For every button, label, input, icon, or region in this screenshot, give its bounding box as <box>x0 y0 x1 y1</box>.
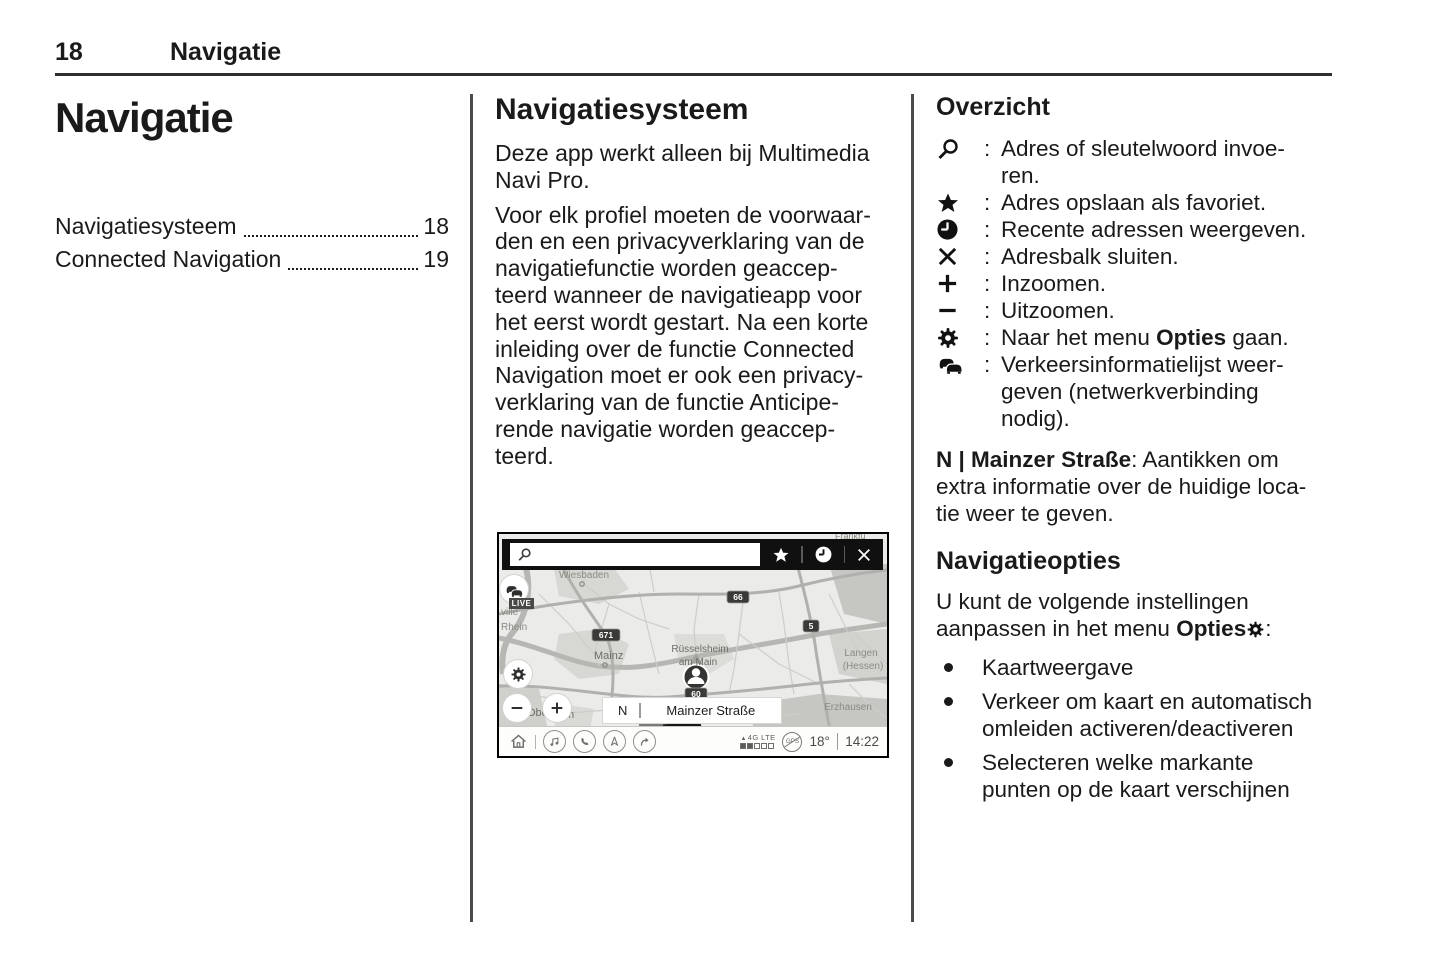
map-options-button[interactable] <box>504 660 532 688</box>
toc-page-number: 19 <box>423 243 449 276</box>
options-gear-icon <box>936 324 984 351</box>
chapter-title: Navigatie <box>170 38 281 67</box>
traffic-icon <box>936 351 984 378</box>
zoom-in-icon <box>936 270 984 297</box>
zoom-out-icon <box>936 297 984 324</box>
list-item: Verkeer om kaart en automatisch omleiden… <box>936 688 1346 742</box>
toc-item: Connected Navigation 19 <box>55 243 449 276</box>
infotainment-status-bar: ▲ 4G LTE GPS 18° 14:22 <box>499 726 887 756</box>
road-badge: 671 <box>592 629 620 641</box>
toc-page-number: 18 <box>423 210 449 243</box>
options-intro-paragraph: U kunt de volgende instellingen aanpasse… <box>936 588 1346 642</box>
zoom-in-icon <box>549 700 565 716</box>
location-note-paragraph: N | Mainzer Straße: Aantikken om extra i… <box>936 446 1346 527</box>
map-search-bar <box>502 539 883 570</box>
route-arrow-icon <box>637 734 652 749</box>
route-button[interactable] <box>633 730 656 753</box>
table-of-contents: Navigatiesysteem 18 Connected Navigation… <box>55 210 449 276</box>
navigation-button[interactable] <box>603 730 626 753</box>
right-column: Overzicht : Adres of sleutelwoord invoe-… <box>936 92 1346 810</box>
list-item: Kaartweergave <box>936 654 1346 681</box>
toc-label: Connected Navigation <box>55 243 281 276</box>
column-divider-right <box>911 94 914 922</box>
overview-icon-list: : Adres of sleutelwoord invoe- ren. : Ad… <box>936 135 1346 432</box>
svg-text:5: 5 <box>809 621 814 631</box>
signal-strength-bars <box>740 743 774 749</box>
bullet-icon <box>944 697 953 706</box>
svg-text:66: 66 <box>733 592 743 602</box>
column-divider-left <box>470 94 473 922</box>
map-label: Wiesbaden <box>559 570 609 581</box>
svg-text:671: 671 <box>599 630 613 640</box>
list-item: : Inzoomen. <box>936 270 1346 297</box>
header-rule <box>55 73 1332 76</box>
search-icon <box>936 135 984 162</box>
current-street-name: Mainzer Straße <box>641 703 781 718</box>
toc-dot-leader <box>244 235 419 237</box>
map-label: Rhein <box>501 622 527 633</box>
close-address-bar-button[interactable] <box>856 547 872 563</box>
chapter-heading: Navigatie <box>55 92 449 144</box>
list-item: : Recente adressen weergeven. <box>936 216 1346 243</box>
body-paragraph: Deze app werkt alleen bij Multimedia Nav… <box>495 140 902 194</box>
network-indicator: ▲ 4G LTE <box>740 734 775 749</box>
section-heading: Navigatiesysteem <box>495 92 902 128</box>
left-column: Navigatie Navigatiesysteem 18 Connected … <box>55 92 449 276</box>
zoom-out-icon <box>509 700 525 716</box>
gear-icon <box>510 666 527 683</box>
options-bullet-list: Kaartweergave Verkeer om kaart en automa… <box>936 654 1346 803</box>
gear-icon <box>1246 616 1265 641</box>
phone-button[interactable] <box>573 730 596 753</box>
list-item: : Verkeersinformatielijst weer- geven (n… <box>936 351 1346 432</box>
road-badge: 5 <box>803 620 819 632</box>
infotainment-screenshot: 66671560 WiesbadenvilleRheinMainzRüssels… <box>497 532 889 758</box>
compass-heading: N <box>618 703 627 718</box>
traffic-icon <box>504 582 524 597</box>
map-label: Mainz <box>594 650 623 662</box>
toolbar-separator <box>801 546 803 563</box>
list-item: Selecteren welke markante punten op de k… <box>936 749 1346 803</box>
recent-addresses-button[interactable] <box>814 545 833 564</box>
middle-column: Navigatiesysteem Deze app werkt alleen b… <box>495 92 902 478</box>
nav-arrow-icon <box>607 734 622 749</box>
network-type: 4G LTE <box>748 734 776 742</box>
close-icon <box>936 243 984 270</box>
search-icon <box>517 547 532 562</box>
current-location-bar[interactable]: N Mainzer Straße <box>602 697 782 724</box>
map-label: (Hessen) <box>843 661 884 672</box>
list-item: : Uitzoomen. <box>936 297 1346 324</box>
toc-item: Navigatiesysteem 18 <box>55 210 449 243</box>
zoom-out-button[interactable] <box>503 694 531 722</box>
gps-status-icon: GPS <box>782 732 802 752</box>
search-input[interactable] <box>510 543 760 566</box>
list-item: : Adres of sleutelwoord invoe- ren. <box>936 135 1346 189</box>
clock-time: 14:22 <box>845 734 879 749</box>
bullet-icon <box>944 663 953 672</box>
road-badge: 66 <box>727 591 749 603</box>
map-label: Erzhausen <box>824 702 872 713</box>
phone-icon <box>578 735 592 749</box>
map-label: Langen <box>844 648 877 659</box>
page-number: 18 <box>55 38 83 67</box>
toolbar-separator <box>844 546 846 563</box>
toc-dot-leader <box>288 268 418 270</box>
section-heading: Navigatieopties <box>936 546 1346 576</box>
list-item: : Adres opslaan als favoriet. <box>936 189 1346 216</box>
home-button[interactable] <box>509 732 528 751</box>
live-traffic-badge: LIVE <box>509 598 534 609</box>
audio-button[interactable] <box>543 730 566 753</box>
page-header: 18 Navigatie <box>55 38 1331 70</box>
statusbar-separator <box>837 733 838 750</box>
antenna-icon: ▲ <box>740 736 746 742</box>
outside-temperature: 18° <box>809 734 829 749</box>
list-item: : Naar het menu Opties gaan. <box>936 324 1346 351</box>
map-label: am Main <box>679 657 717 668</box>
body-paragraph: Voor elk profiel moeten de voorwaar- den… <box>495 202 902 470</box>
toc-label: Navigatiesysteem <box>55 210 237 243</box>
music-note-icon <box>547 734 562 749</box>
list-item: : Adresbalk sluiten. <box>936 243 1346 270</box>
favorite-star-button[interactable] <box>772 546 790 564</box>
manual-page: 18 Navigatie Navigatie Navigatiesysteem … <box>0 0 1445 966</box>
statusbar-separator <box>535 735 536 749</box>
recent-clock-icon <box>936 216 984 243</box>
section-heading: Overzicht <box>936 92 1346 122</box>
zoom-in-button[interactable] <box>543 694 571 722</box>
map-label: Rüsselsheim <box>671 644 728 655</box>
bullet-icon <box>944 758 953 767</box>
favorite-star-icon <box>936 189 984 216</box>
